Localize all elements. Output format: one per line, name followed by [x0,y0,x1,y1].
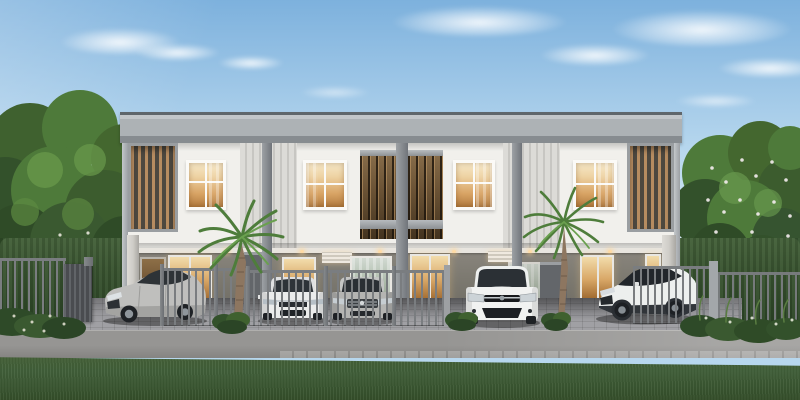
palm-tree-right [524,188,603,322]
planting-layer [0,0,800,400]
planting-bed-left [0,308,86,339]
townhouse-exterior-render [0,0,800,400]
shrub [541,312,571,331]
planting-bed-right [680,296,800,343]
palm-tree-left [199,201,283,320]
shrub [445,312,478,331]
shrub [212,312,250,334]
